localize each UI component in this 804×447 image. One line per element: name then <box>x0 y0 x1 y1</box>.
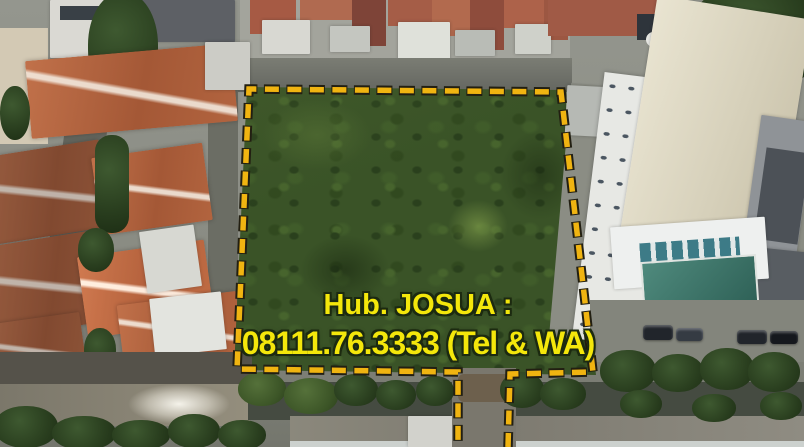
aerial-photo: Hub. JOSUA : 08111.76.3333 (Tel & WA) <box>0 0 804 447</box>
contact-phone-line: 08111.76.3333 (Tel & WA) <box>228 326 608 361</box>
plot-boundary-dashes <box>237 89 593 447</box>
contact-overlay: Hub. JOSUA : 08111.76.3333 (Tel & WA) <box>228 290 608 361</box>
plot-boundary-outline-dark <box>237 89 593 447</box>
contact-name-line: Hub. JOSUA : <box>228 290 608 321</box>
plot-boundary <box>0 0 804 447</box>
